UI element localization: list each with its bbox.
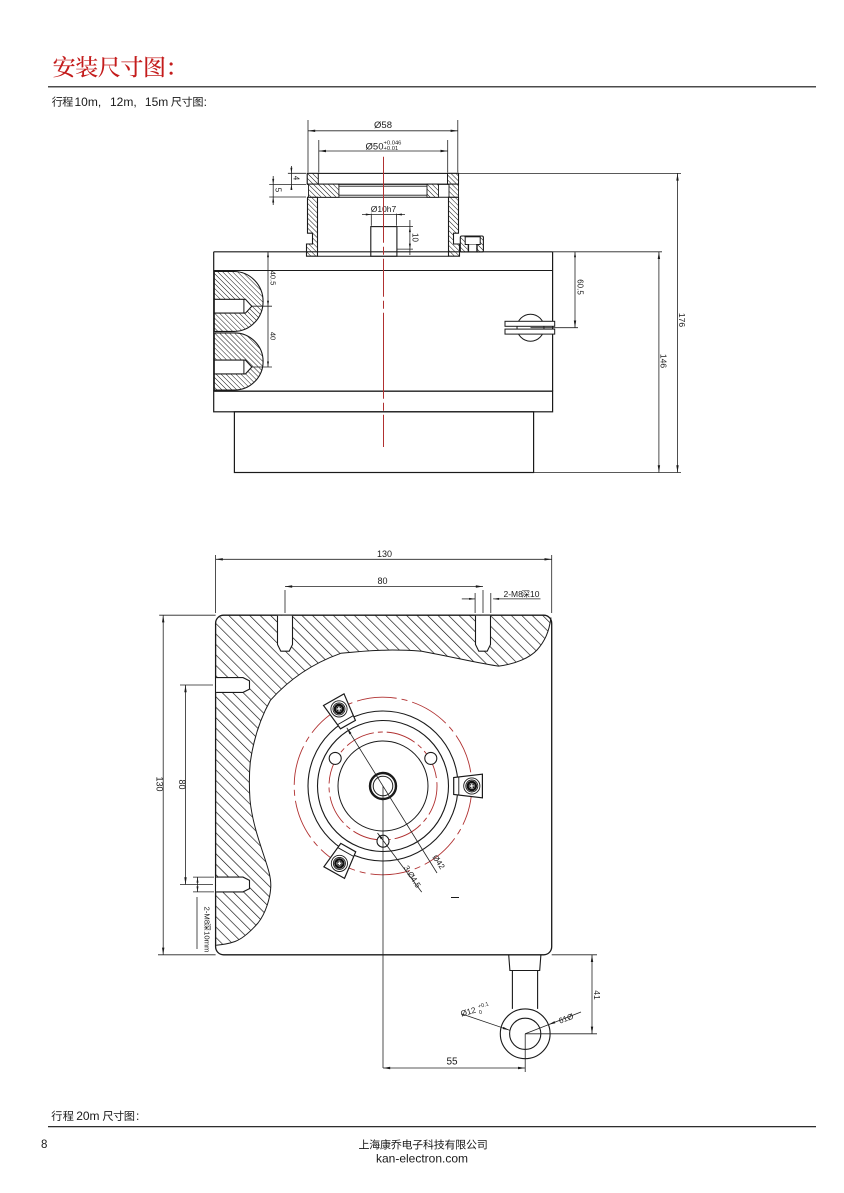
svg-text:130: 130	[377, 549, 392, 559]
svg-text:15m: 15m	[145, 95, 168, 109]
svg-text:60.5: 60.5	[576, 279, 585, 295]
svg-text:10m,: 10m,	[75, 95, 102, 109]
svg-text:80: 80	[377, 576, 387, 586]
svg-text:2-M8: 2-M8	[504, 589, 524, 599]
svg-text::: :	[204, 95, 207, 109]
svg-text:80: 80	[177, 779, 187, 789]
svg-text::: :	[136, 1109, 139, 1123]
svg-text:Ø58: Ø58	[374, 120, 392, 131]
svg-text:+0.01: +0.01	[384, 146, 399, 152]
svg-text:40.5: 40.5	[269, 271, 278, 286]
svg-text:146: 146	[659, 354, 669, 368]
svg-text:41: 41	[592, 990, 602, 1000]
svg-text:8: 8	[41, 1139, 47, 1151]
svg-text:12m,: 12m,	[110, 95, 137, 109]
svg-text:2-M8: 2-M8	[203, 907, 212, 925]
svg-text:10mm: 10mm	[203, 931, 212, 952]
svg-text:4: 4	[292, 176, 301, 181]
svg-text:kan-electron.com: kan-electron.com	[376, 1152, 468, 1166]
svg-text:10: 10	[411, 233, 420, 242]
svg-text:20m: 20m	[76, 1109, 99, 1123]
svg-text:Ø50: Ø50	[366, 142, 384, 153]
svg-text:55: 55	[446, 1057, 458, 1068]
svg-text:40: 40	[269, 332, 278, 340]
svg-text:130: 130	[155, 776, 165, 791]
svg-text:176: 176	[677, 313, 687, 327]
svg-text:5: 5	[273, 188, 282, 193]
svg-text:10: 10	[530, 589, 540, 599]
